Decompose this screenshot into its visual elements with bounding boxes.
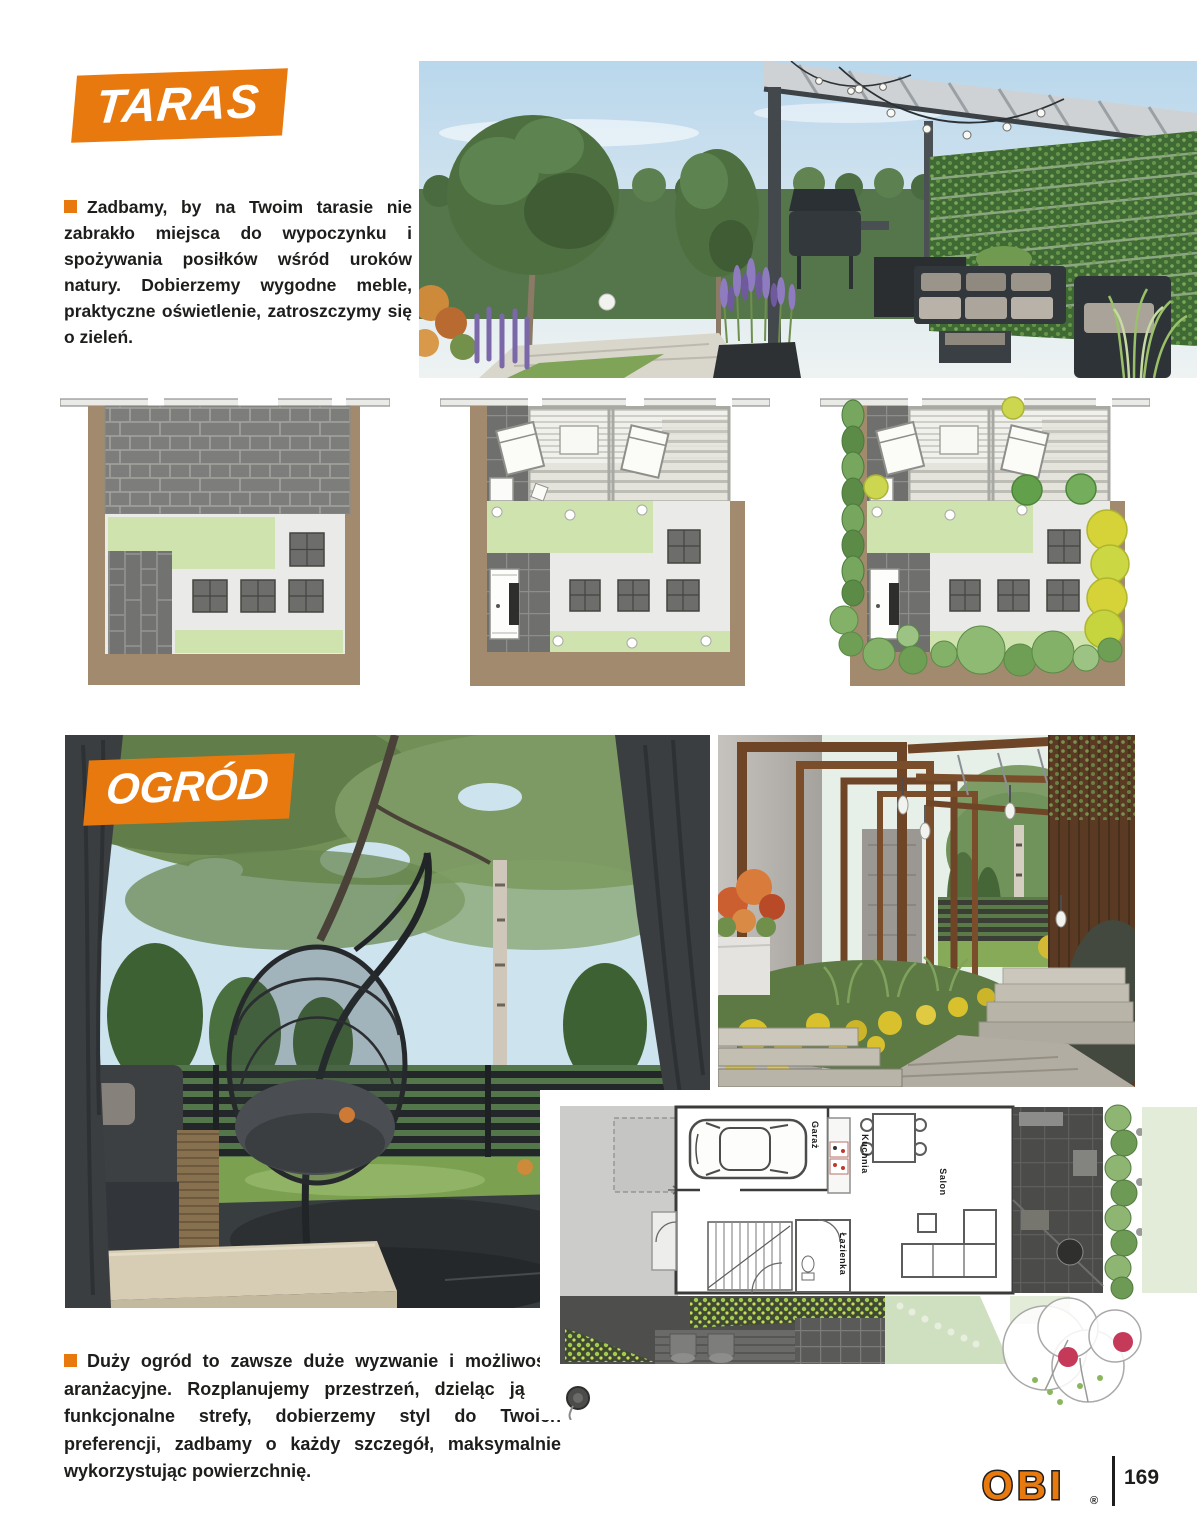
house-garden-floor-plan: Garaż Kuchnia Salon Łazienka [540, 1090, 1197, 1420]
kitchen-label: Kuchnia [860, 1134, 870, 1174]
pergola-table [560, 426, 598, 454]
kitchen-counter [828, 1118, 850, 1193]
obi-logo-text: OBI [982, 1464, 1065, 1508]
paving-brick [105, 406, 350, 514]
obi-registered-mark: ® [1090, 1495, 1098, 1507]
rear-terrace [1013, 1107, 1103, 1293]
catalog-page: TARAS Zadbamy, by na Twoim tarasie nie z… [0, 0, 1200, 1515]
garden-sphere-lamp [599, 294, 615, 310]
coffee-table [83, 1241, 397, 1308]
page-number: 169 [1124, 1466, 1159, 1490]
stairs [708, 1222, 792, 1290]
obi-logo: OBI ® [978, 1458, 1108, 1515]
taras-banner-label: TARAS [94, 74, 262, 133]
living-room-label: Salon [938, 1168, 948, 1196]
bathroom-label: Łazienka [838, 1233, 848, 1276]
ogrod-description: Duży ogród to zawsze duże wyzwanie i moż… [64, 1348, 561, 1486]
garage-label: Garaż [810, 1121, 820, 1149]
terrace-plan-2 [440, 393, 770, 693]
taras-description: Zadbamy, by na Twoim tarasie nie zabrakł… [64, 194, 412, 350]
lawn-lower [175, 630, 343, 653]
grill-station [870, 569, 899, 639]
terrace-plan-3 [820, 393, 1150, 693]
grill-station [490, 569, 519, 639]
lawn-upper [487, 501, 653, 553]
terrace-plan-1 [60, 393, 390, 693]
terrace-render-photo [419, 61, 1197, 378]
orange-square-bullet [64, 1354, 77, 1367]
footer-divider [1112, 1456, 1115, 1506]
orange-square-bullet [64, 200, 77, 213]
hedge-left [842, 400, 864, 606]
ogrod-banner-label: OGRÓD [104, 760, 271, 814]
paving-path [108, 551, 172, 654]
taras-section-banner: TARAS [71, 68, 288, 143]
ogrod-description-text: Duży ogród to zawsze duże wyzwanie i moż… [64, 1351, 561, 1481]
taras-description-text: Zadbamy, by na Twoim tarasie nie zabrakł… [64, 197, 412, 347]
garden-pergola-photo [718, 735, 1135, 1087]
side-entry [652, 1212, 676, 1270]
ogrod-section-banner: OGRÓD [83, 753, 295, 825]
car-icon [690, 1120, 806, 1178]
